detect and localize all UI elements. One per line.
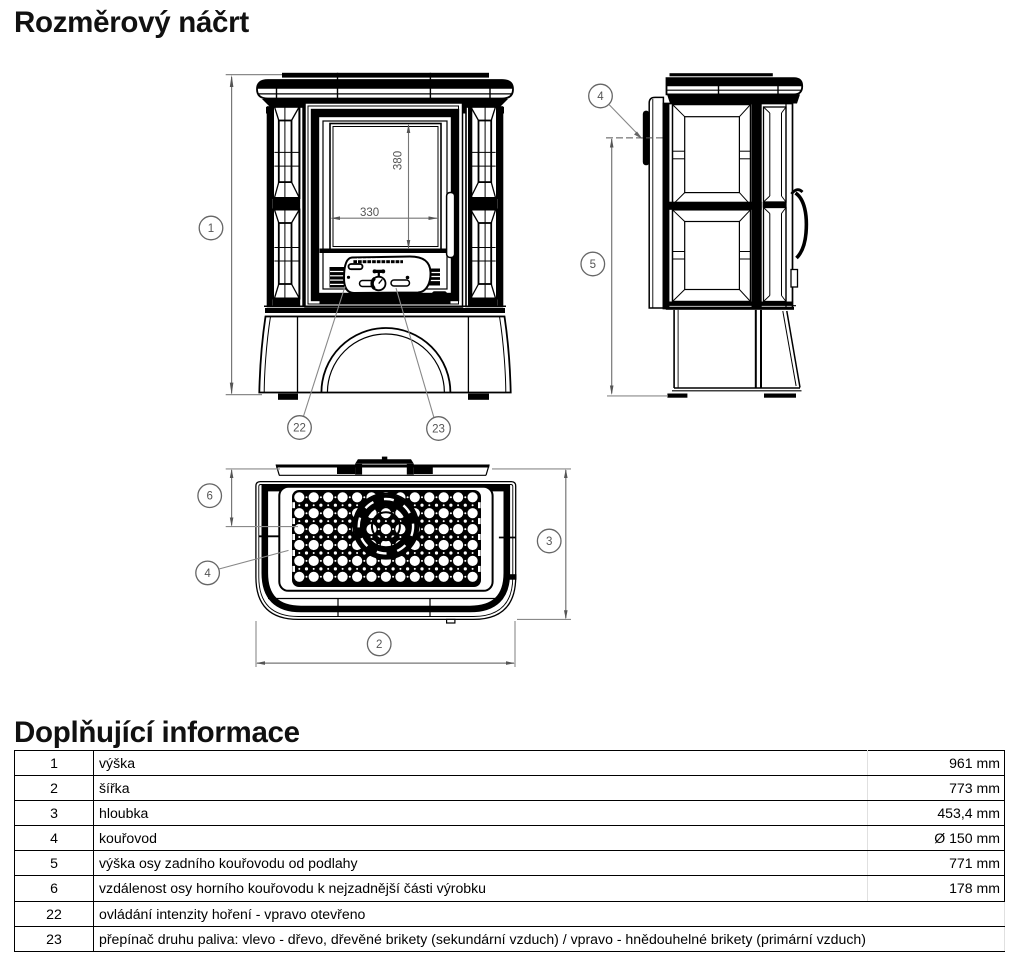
svg-text:4: 4 <box>204 568 211 580</box>
svg-text:2: 2 <box>376 639 382 651</box>
svg-text:5: 5 <box>590 259 596 271</box>
svg-text:6: 6 <box>206 491 212 503</box>
svg-text:4: 4 <box>597 91 604 103</box>
svg-text:23: 23 <box>432 424 445 436</box>
svg-text:3: 3 <box>546 536 552 548</box>
svg-text:380: 380 <box>393 151 405 170</box>
svg-text:330: 330 <box>360 207 379 219</box>
svg-text:22: 22 <box>293 423 306 435</box>
svg-text:1: 1 <box>208 223 214 235</box>
